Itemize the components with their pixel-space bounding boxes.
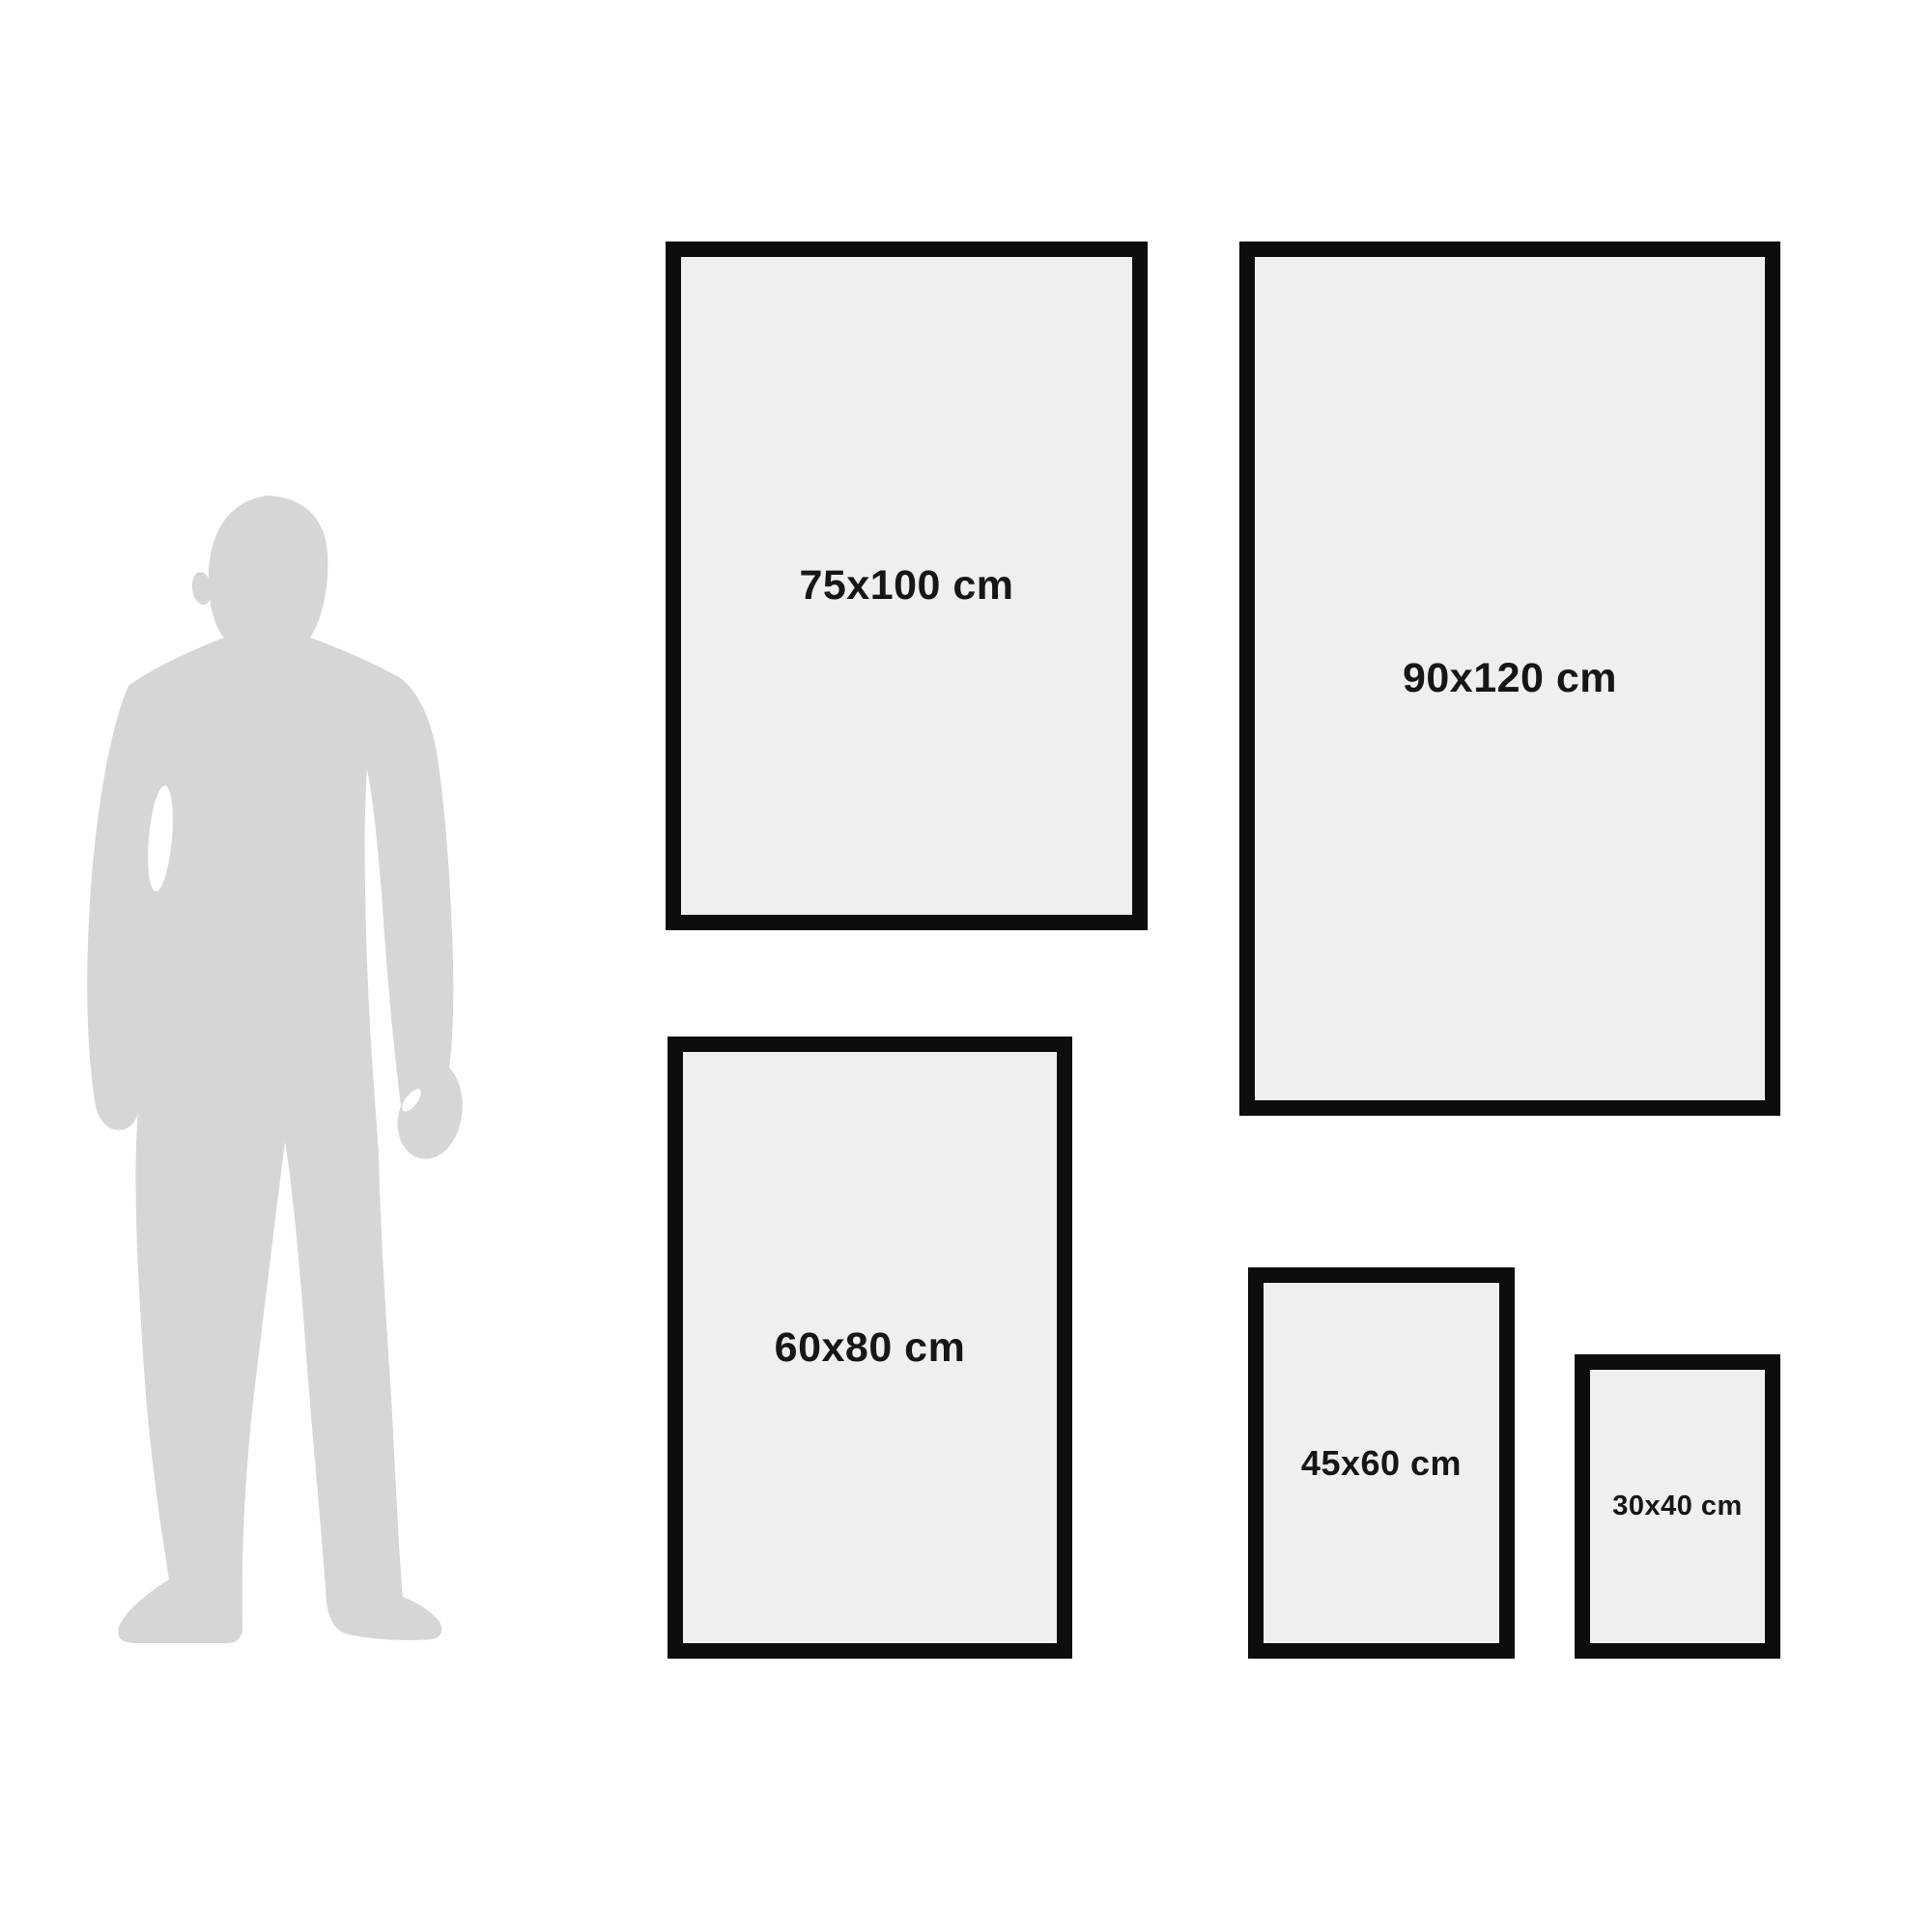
frame-90x120: 90x120 cm	[1239, 241, 1780, 1116]
frame-60x80-label: 60x80 cm	[775, 1324, 966, 1372]
frame-75x100: 75x100 cm	[666, 241, 1148, 930]
size-comparison-diagram: 75x100 cm 90x120 cm 60x80 cm 45x60 cm 30…	[0, 0, 1932, 1932]
frame-30x40-label: 30x40 cm	[1612, 1491, 1743, 1522]
frame-75x100-label: 75x100 cm	[799, 562, 1013, 610]
silhouette-arm	[367, 677, 463, 1159]
person-silhouette	[82, 488, 526, 1647]
frame-90x120-label: 90x120 cm	[1403, 655, 1617, 702]
frame-60x80: 60x80 cm	[668, 1037, 1072, 1659]
frame-30x40: 30x40 cm	[1575, 1354, 1780, 1659]
frame-45x60: 45x60 cm	[1248, 1267, 1515, 1659]
frame-45x60-label: 45x60 cm	[1301, 1443, 1462, 1484]
